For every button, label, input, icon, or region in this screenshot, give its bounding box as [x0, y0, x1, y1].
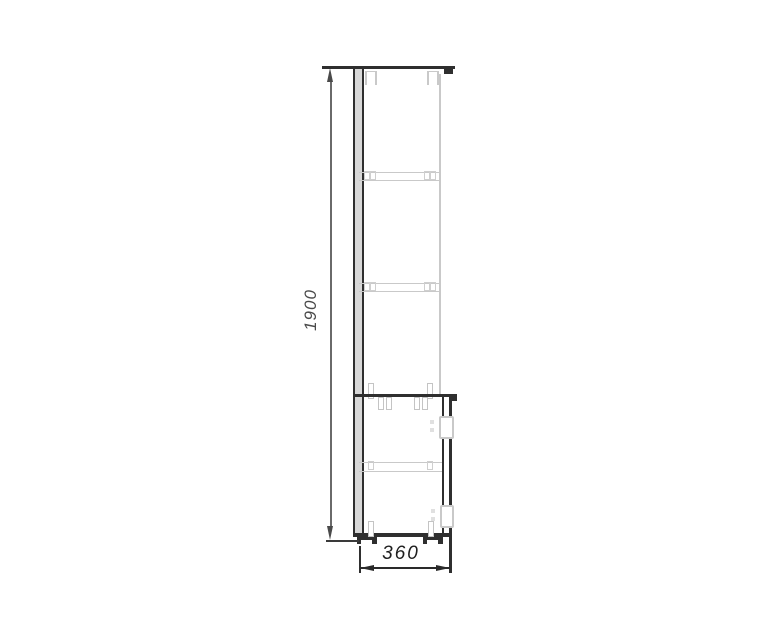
lower-shelf-support-right — [427, 461, 433, 470]
upper-right-edge — [439, 74, 441, 396]
lower-shelf-support-left — [368, 461, 374, 470]
height-dimension-label: 1900 — [301, 280, 321, 340]
width-dimension-arrow-right — [436, 565, 450, 571]
hinge-bottom-screw-a — [431, 509, 435, 513]
foot-dowel-left — [368, 521, 374, 537]
foot-dowel-right — [428, 521, 434, 537]
top-panel-line — [322, 66, 455, 69]
top-panel-end-cap — [444, 66, 453, 74]
height-dimension-arrow-bottom — [327, 526, 333, 540]
shelf1-support-right-b — [430, 171, 436, 180]
shelf1-support-left-b — [370, 171, 376, 180]
height-dimension-line — [330, 80, 332, 528]
width-dimension-label: 360 — [366, 543, 436, 565]
width-dimension-arrow-left — [360, 565, 374, 571]
shelf2-support-left-b — [370, 282, 376, 291]
height-dimension-arrow-top — [327, 68, 333, 82]
cam-fitting-2 — [386, 397, 392, 410]
top-dowel-left — [365, 71, 377, 85]
door-hinge-bottom — [440, 505, 454, 528]
cam-fitting-4 — [422, 397, 428, 410]
height-extension-line-bottom — [326, 540, 359, 542]
door-hinge-top — [439, 416, 454, 439]
cam-fitting-1 — [378, 397, 384, 410]
technical-drawing-canvas: 1900 — [0, 0, 770, 642]
hinge-top-screw-b — [430, 428, 434, 432]
hinge-top-screw-a — [430, 420, 434, 424]
shelf2-support-right-b — [430, 282, 436, 291]
top-dowel-right — [427, 71, 439, 85]
cam-fitting-3 — [414, 397, 420, 410]
foot-right-tab-b — [438, 540, 443, 544]
